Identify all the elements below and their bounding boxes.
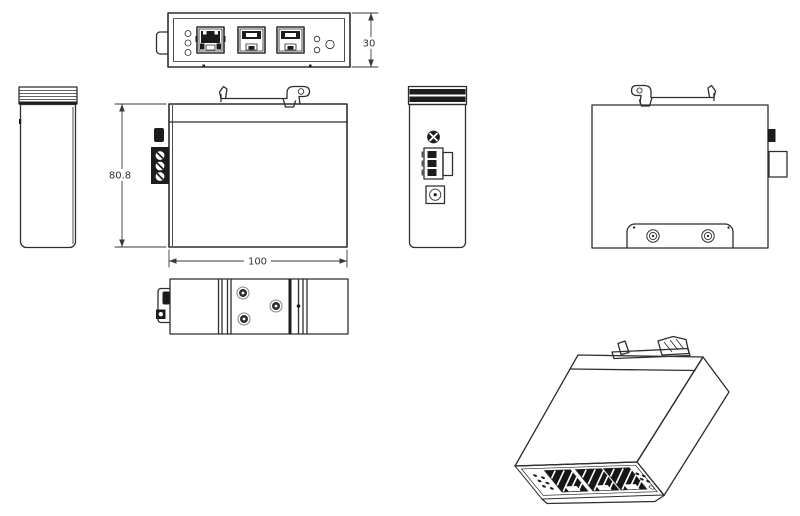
dc-power-jack bbox=[426, 186, 445, 204]
bottom-screw bbox=[237, 287, 249, 299]
dimension-label-body-depth: 80.8 bbox=[109, 171, 131, 182]
body-outline bbox=[169, 104, 347, 247]
plate-screw bbox=[702, 230, 714, 242]
bottom-screw bbox=[238, 313, 250, 325]
rj45-port-1 bbox=[196, 27, 226, 53]
vent-hatch bbox=[19, 91, 77, 100]
bottom-view bbox=[156, 279, 348, 334]
technical-drawing: 30 bbox=[0, 0, 800, 516]
front-panel-view bbox=[157, 13, 351, 67]
pin-hole bbox=[297, 304, 301, 308]
top-face bbox=[515, 355, 703, 466]
right-face bbox=[637, 357, 729, 496]
right-side-power-view bbox=[409, 87, 467, 248]
groove-lines-left bbox=[219, 279, 232, 334]
rj45-port-3 bbox=[277, 27, 304, 53]
body-outline bbox=[170, 279, 348, 334]
mount-plate bbox=[627, 224, 733, 248]
isometric-view bbox=[515, 337, 729, 504]
panel-outline bbox=[168, 13, 350, 67]
witness-mark bbox=[203, 65, 206, 68]
terminal-block-side bbox=[422, 148, 453, 179]
side-latch bbox=[768, 129, 776, 142]
body-outline bbox=[592, 105, 768, 248]
din-rail-clip-rear bbox=[632, 86, 716, 107]
status-leds-right bbox=[314, 36, 320, 53]
dimension-label-body-width: 100 bbox=[248, 257, 267, 268]
dimension-label-panel-height: 30 bbox=[363, 39, 376, 50]
dimension-panel-height: 30 bbox=[352, 13, 378, 67]
terminal-block bbox=[151, 147, 169, 184]
dimension-body-width: 100 bbox=[169, 250, 347, 268]
left-side-view bbox=[19, 87, 77, 248]
side-latch bbox=[19, 119, 21, 124]
front-face bbox=[515, 462, 664, 499]
terminal-block-protrusion bbox=[769, 152, 787, 178]
rear-din-mount-view bbox=[592, 86, 787, 249]
body-outline bbox=[21, 105, 76, 248]
ground-screw bbox=[428, 131, 440, 143]
plate-screw bbox=[647, 230, 659, 242]
body-outline bbox=[410, 105, 466, 248]
status-leds-left bbox=[185, 31, 191, 56]
witness-mark bbox=[309, 65, 312, 68]
groove-band bbox=[289, 279, 292, 334]
rj45-port-2 bbox=[238, 27, 265, 53]
top-band-line-iso bbox=[570, 369, 695, 371]
side-latch bbox=[154, 128, 164, 142]
bottom-screw bbox=[270, 300, 282, 312]
front-view bbox=[151, 87, 347, 248]
reset-button bbox=[326, 40, 334, 48]
terminal-tab bbox=[157, 32, 169, 54]
